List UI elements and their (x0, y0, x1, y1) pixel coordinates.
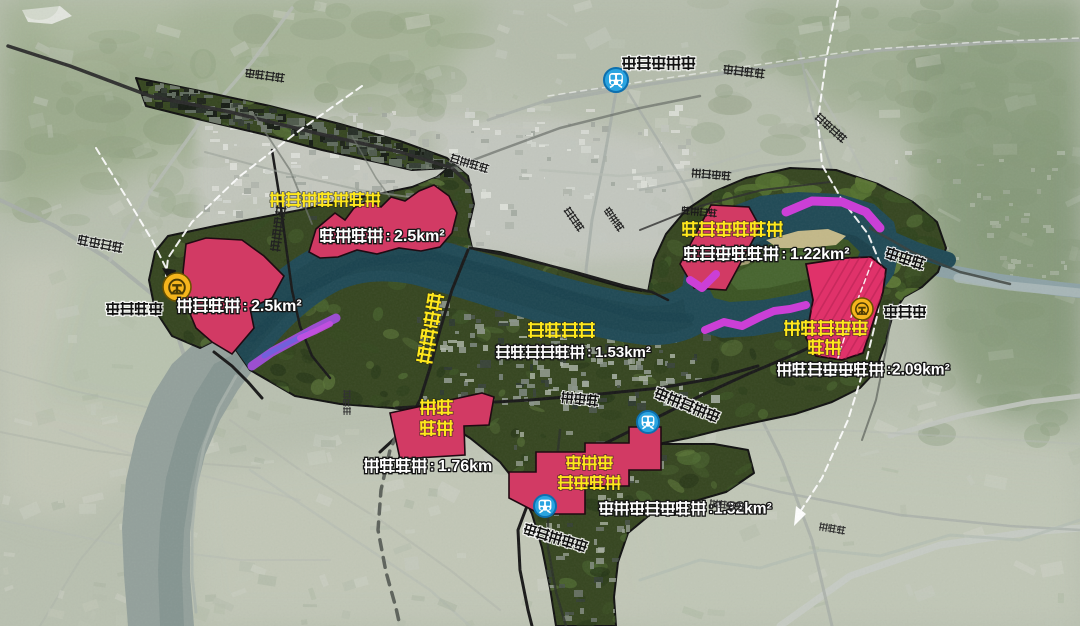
svg-text:1.22km²: 1.22km² (790, 246, 850, 263)
svg-text::: : (587, 343, 592, 359)
svg-text::: : (781, 245, 786, 262)
svg-text::: : (386, 227, 391, 244)
svg-text:1.76km: 1.76km (438, 458, 492, 475)
svg-text:1.53km²: 1.53km² (595, 344, 651, 361)
svg-text:2.09km²: 2.09km² (892, 361, 950, 378)
svg-text:2.5km²: 2.5km² (251, 298, 302, 315)
svg-text::: : (243, 297, 248, 314)
svg-text::: : (887, 362, 892, 378)
svg-text::: : (430, 457, 435, 474)
svg-text:2.5km²: 2.5km² (394, 228, 445, 245)
